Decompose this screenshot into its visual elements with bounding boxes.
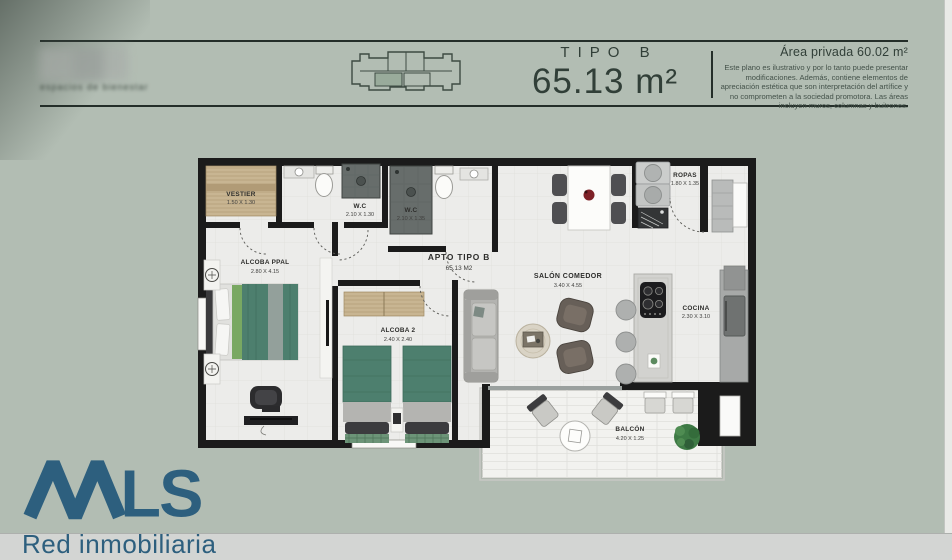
logo-ls-text: LS (120, 458, 201, 524)
room-dims-cocina: 2.30 X 3.10 (682, 314, 710, 320)
private-area-block: Área privada 60.02 m² Este plano es ilus… (716, 45, 908, 111)
floor-plan: VESTIER 1.50 X 1.30 W.C 2.10 X 1.30 (192, 150, 760, 482)
nightstand (391, 408, 403, 432)
bedroom-chair (250, 386, 282, 409)
room-label-balcon: BALCÓN (615, 424, 644, 433)
room-dims-wc1: 2.10 X 1.30 (346, 212, 374, 218)
bed-double (206, 282, 298, 362)
room-vestier: VESTIER 1.50 X 1.30 (206, 166, 276, 216)
twin-bed-2 (403, 346, 451, 443)
right-edge-strip (944, 0, 952, 560)
rug-coffee-table (516, 324, 550, 358)
sofa (464, 290, 498, 382)
mls-logo: LS (22, 452, 217, 524)
room-dims-alcoba-ppal: 2.80 X 4.15 (251, 269, 279, 275)
unit-type-label: TIPO B (505, 44, 705, 61)
legal-disclaimer: Este plano es ilustrativo y por lo tanto… (716, 63, 908, 111)
brand-tagline: Red inmobiliaria (22, 529, 242, 560)
twin-bed-1 (343, 346, 391, 443)
room-dims-vestier: 1.50 X 1.30 (227, 200, 255, 206)
logo-m-glyph (30, 463, 120, 517)
unit-area-value: 65.13 m² (505, 62, 705, 102)
brochure-page: espacios de bienestar TIPO B 65.13 m² Ár… (0, 0, 952, 560)
tv-panel (320, 258, 332, 378)
plant (674, 424, 700, 450)
brand-logo-block: LS Red inmobiliaria (22, 452, 242, 560)
building-keyplan-icon (348, 44, 464, 98)
header-vertical-divider (711, 51, 713, 98)
room-label-alcoba-ppal: ALCOBA PPAL (241, 259, 290, 266)
header-rule-top (40, 40, 908, 42)
bar-stools (616, 300, 636, 384)
room-label-wc1: W.C (354, 203, 367, 210)
room-dims-balcon: 4.20 X 1.25 (616, 436, 644, 442)
keyplan-highlighted-unit (375, 73, 402, 86)
room-label-alcoba2: ALCOBA 2 (381, 327, 416, 334)
stove (640, 282, 666, 318)
room-dims-wc2: 2.10 X 1.35 (397, 216, 425, 222)
room-dims-salon: 3.40 X 4.55 (554, 283, 582, 289)
entry-zone (712, 180, 747, 232)
room-dims-alcoba2: 2.40 X 2.40 (384, 337, 412, 343)
unit-type-block: TIPO B 65.13 m² (505, 44, 705, 102)
project-tagline-blurred: espacios de bienestar (40, 82, 180, 92)
room-dims-ropas: 1.80 X 1.35 (671, 181, 699, 187)
private-area-label: Área privada 60.02 m² (716, 45, 908, 59)
room-label-cocina: COCINA (682, 305, 709, 312)
room-label-wc2: W.C (405, 207, 418, 214)
room-label-salon: SALÓN COMEDOR (534, 271, 602, 280)
project-logo-blurred (40, 48, 128, 81)
unit-name-label: APTO TIPO B (428, 252, 490, 262)
room-label-vestier: VESTIER (226, 191, 256, 198)
room-label-ropas: ROPAS (673, 172, 697, 179)
